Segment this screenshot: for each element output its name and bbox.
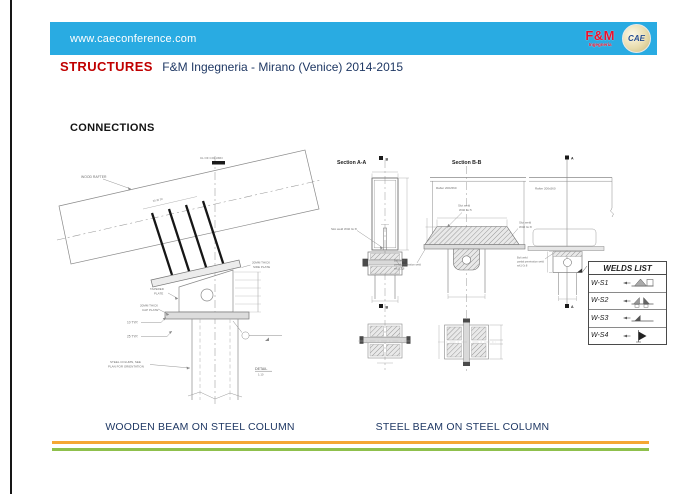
detail-title: DETAIL [255, 367, 267, 371]
welds-list-row-ws1: W-S1 [589, 275, 666, 293]
centerline-label: CL OF COLUMN [200, 156, 223, 160]
side-plate [151, 260, 241, 287]
bolt-left [363, 259, 369, 267]
header-logos: F&M Ingegneria CAE [585, 24, 651, 53]
slot-weld-c-line1: Slot weld [458, 204, 471, 208]
wood-rafter-label: WOOD RAFTER [81, 175, 107, 179]
caption-steel-beam: STEEL BEAM ON STEEL COLUMN [355, 421, 570, 433]
gusset-hole [462, 256, 470, 264]
steel-column-label-2: PLAN FOR ORIENTATION [108, 365, 144, 369]
weld-symbol-ws4 [615, 329, 664, 343]
section-marker-b-top-label: B [386, 158, 389, 162]
slide-title: STRUCTURES F&M Ingegneria - Mirano (Veni… [60, 58, 403, 76]
slot-weld-r-line2: W40 Gr.8 [519, 225, 532, 229]
section-marker-b-bottom [379, 304, 383, 308]
pen-weld-label-aa: Bolt weld partial penetration weld w/t1 … [394, 259, 421, 271]
slot-weld-label: Slot weld W40 Gr.8 [331, 227, 357, 231]
pen-weld-bb-line3: w/t1 Gr.8 [517, 264, 528, 268]
fm-logo-subtext: Ingegneria [589, 43, 612, 48]
section-aa: Section A-A B Slot weld W40 Gr.8 [331, 156, 425, 370]
section-marker-a-top-label: A [571, 157, 574, 161]
weld-symbol-ws2 [615, 294, 664, 308]
pen-weld-bb-line2: partial penetration weld [517, 260, 544, 264]
cap-plate [165, 312, 249, 319]
elevation-column-lines [559, 273, 577, 296]
tapered-plate-label-2: PLATE [154, 292, 163, 296]
weld-flag-line [582, 266, 587, 273]
cap-plate-label-2: CAP PLATE [142, 308, 158, 312]
welds-list-row-ws4: W-S4 [589, 328, 666, 345]
pen-weld-line3: w/t1 Gr.8 [394, 267, 405, 271]
column-top-tick [212, 161, 225, 165]
pin-hole [201, 289, 213, 301]
elevation-hole [564, 259, 572, 267]
slot-weld-right-label: Slot weld W40 Gr.8 [519, 221, 532, 230]
slide-subtitle: F&M Ingegneria - Mirano (Venice) 2014-20… [162, 60, 403, 74]
detail-scale: 1:10 [258, 373, 264, 377]
slide-canvas: www.caeconference.com F&M Ingegneria CAE… [0, 0, 700, 494]
left-border-line [10, 0, 12, 494]
fm-logo-text: F&M [585, 29, 615, 42]
pen-weld-label-bb: Bolt weld partial penetration weld w/t1 … [517, 256, 544, 268]
elevation-base-plate [528, 247, 604, 251]
footer-orange-rule [52, 441, 649, 444]
side-plate-outline [533, 229, 596, 246]
wood-rafter-outline [59, 150, 319, 264]
slot-weld-leader [357, 231, 383, 249]
elevation-rafter-band [529, 178, 614, 218]
slot-weld-r-leader [512, 229, 518, 236]
bolt-plan-bb [438, 319, 503, 367]
pen-weld-leader-right [417, 250, 425, 264]
section-marker-b-top [379, 156, 383, 160]
slot-weld-r-line1: Slot weld [519, 221, 532, 225]
weld-row-label-ws4: W-S4 [591, 332, 613, 339]
slide-title-keyword: STRUCTURES [60, 59, 153, 74]
footer-green-rule [52, 448, 649, 452]
fm-ingegneria-logo: F&M Ingegneria [585, 29, 615, 48]
right-dim-stack [234, 272, 261, 312]
section-heading: CONNECTIONS [70, 122, 155, 134]
section-marker-a-top [565, 156, 569, 160]
cap-plate-label-1: 20MM THICK [140, 304, 158, 308]
typ25-dim: 25 TYP. [127, 335, 138, 339]
rod-spacing-dim-line [143, 197, 197, 210]
elevation-bracket-hatch [553, 252, 582, 257]
weld-row-label-ws3: W-S3 [591, 315, 613, 322]
welds-list-title: WELDS LIST [589, 262, 666, 275]
base-plate [424, 245, 525, 250]
section-bb-title: Section B-B [452, 160, 482, 166]
side-plate-label-1: 20MM THICK [252, 261, 270, 265]
slot-weld-arrow [380, 246, 383, 249]
cae-conference-logo: CAE [622, 24, 651, 53]
weld-symbol-ws3 [615, 311, 664, 325]
section-marker-a-bottom-label: A [571, 305, 574, 309]
weld-row-label-ws2: W-S2 [591, 297, 613, 304]
weld-row-label-ws1: W-S1 [591, 280, 613, 287]
rafter-size-label: Rafter 200x560 [436, 186, 457, 190]
caption-wooden-beam: WOODEN BEAM ON STEEL COLUMN [85, 421, 315, 433]
steel-column-label-1: STEEL COLUMN, SEE [110, 360, 141, 364]
weld-symbol-ws1 [615, 276, 664, 290]
weld-callout [233, 321, 282, 341]
pen-weld-line1: Bolt weld [394, 259, 405, 263]
header-bar: www.caeconference.com F&M Ingegneria CAE [50, 22, 657, 55]
typ10-dim: 10 TYP. [127, 321, 138, 325]
section-marker-a-bottom [565, 304, 569, 308]
cae-logo-text: CAE [628, 34, 645, 43]
website-link[interactable]: www.caeconference.com [70, 33, 196, 45]
section-marker-b-bottom-label: B [386, 306, 389, 310]
left-drawing-labels: CL OF COLUMN WOOD RAFTER 30 30 30 20MM T… [81, 156, 270, 377]
weld-flag-triangle [577, 269, 582, 273]
centerlines [57, 156, 321, 404]
welds-list-row-ws2: W-S2 [589, 293, 666, 311]
pen-weld-bb-line1: Bolt weld [517, 256, 528, 260]
slot-weld-c-line2: W40 Gr.5 [459, 208, 472, 212]
welds-list-row-ws3: W-S3 [589, 310, 666, 328]
tapered-plate-label-1: TAPERED [150, 287, 165, 291]
elevation-dims [548, 252, 577, 302]
slot-weld-center-label: Slot weld W40 Gr.5 [458, 204, 472, 213]
section-bb: Section B-B Rafter 200x560 Slot weld W40… [424, 160, 553, 372]
side-plate-label-2: SIDE PLATE [253, 265, 270, 269]
section-aa-title: Section A-A [337, 160, 366, 166]
left-drawing-wooden-beam: CL OF COLUMN WOOD RAFTER 30 30 30 20MM T… [57, 150, 321, 404]
welds-list-table: WELDS LIST W-S1 W-S2 W-S3 [588, 261, 667, 345]
elevation-rafter-label: Rafter 200x560 [535, 187, 556, 191]
pen-weld-bb-leader [545, 254, 553, 260]
tapered-plate-section [425, 227, 519, 245]
rod-spacing-dims: 30 30 30 [152, 197, 163, 203]
technical-drawing: CL OF COLUMN WOOD RAFTER 30 30 30 20MM T… [55, 148, 670, 414]
